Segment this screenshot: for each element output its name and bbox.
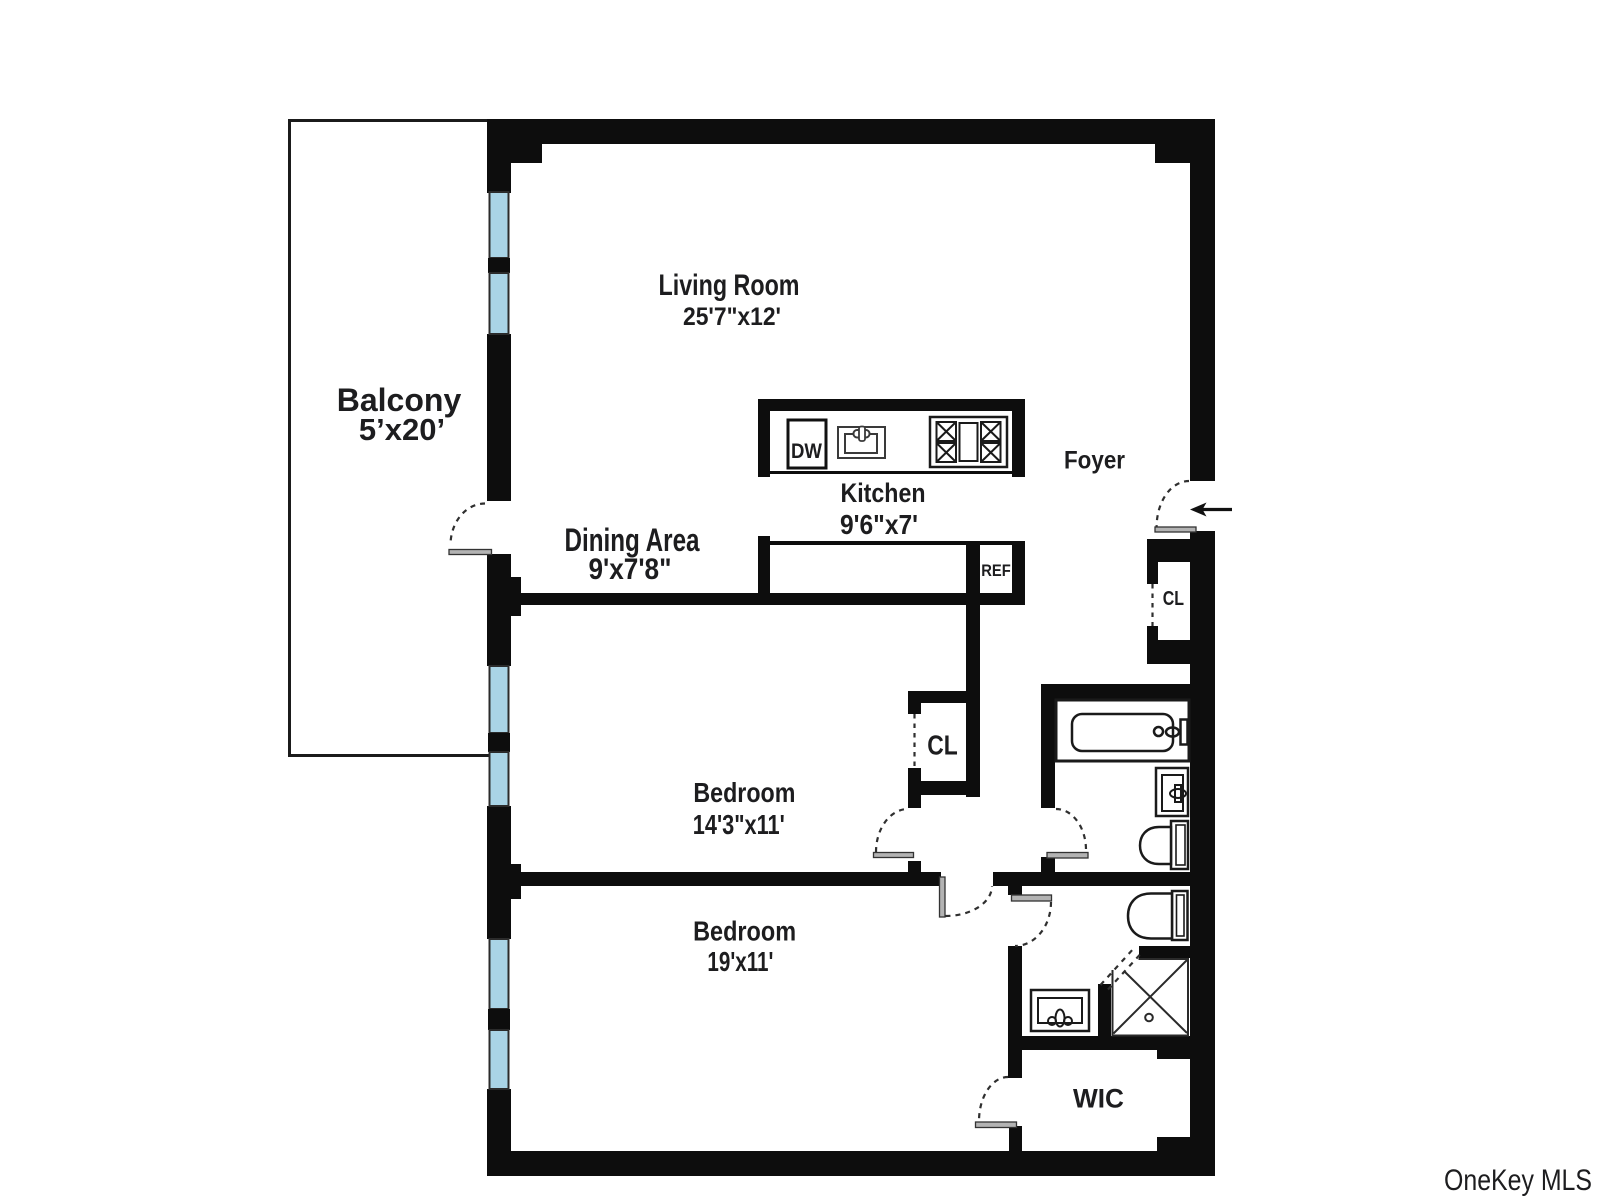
svg-text:Kitchen: Kitchen [841,478,926,508]
svg-text:OneKey MLS: OneKey MLS [1444,1164,1592,1197]
svg-text:REF: REF [981,562,1011,580]
svg-text:Living Room: Living Room [659,269,800,302]
svg-text:25'7"x12': 25'7"x12' [683,303,781,331]
svg-text:Foyer: Foyer [1064,447,1125,475]
svg-text:9'x7'8": 9'x7'8" [589,553,672,586]
svg-text:DW: DW [791,440,822,463]
svg-text:14'3"x11': 14'3"x11' [693,809,785,840]
svg-text:CL: CL [1163,588,1184,610]
svg-text:9'6"x7': 9'6"x7' [840,509,918,540]
svg-text:CL: CL [927,730,958,761]
svg-text:WIC: WIC [1073,1084,1124,1114]
svg-text:5’x20’: 5’x20’ [359,412,445,447]
svg-text:19'x11': 19'x11' [707,946,773,977]
svg-text:Bedroom: Bedroom [693,777,795,808]
svg-text:Bedroom: Bedroom [693,916,796,947]
